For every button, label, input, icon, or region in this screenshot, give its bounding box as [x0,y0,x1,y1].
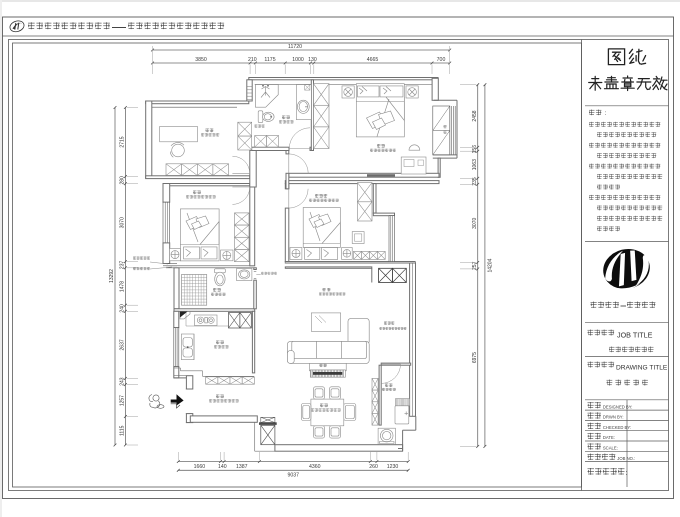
svg-text:2715: 2715 [119,136,125,147]
svg-text:14204: 14204 [488,258,494,272]
svg-text:DESIGNED BY:: DESIGNED BY: [603,404,633,409]
svg-text:280: 280 [119,176,125,185]
svg-text:DRAWING TITLE: DRAWING TITLE [616,365,668,372]
svg-text:243: 243 [119,377,125,386]
svg-text:1660: 1660 [194,464,206,470]
svg-text:1175: 1175 [264,57,275,63]
svg-text:9037: 9037 [288,473,300,479]
svg-text:1230: 1230 [387,464,399,470]
svg-text:1257: 1257 [119,395,125,406]
svg-text:DRWN BY:: DRWN BY: [603,415,624,420]
svg-text:6975: 6975 [472,352,478,363]
svg-text:3850: 3850 [195,57,207,63]
svg-text:SCALE:: SCALE: [603,446,618,451]
svg-text:1387: 1387 [236,464,248,470]
svg-text:1478: 1478 [119,281,125,292]
svg-text:700: 700 [437,57,446,63]
svg-text:1000: 1000 [292,57,304,63]
svg-text:JOB NO.:: JOB NO.: [617,456,635,461]
svg-text:210: 210 [248,57,257,63]
svg-text:4360: 4360 [309,464,321,470]
svg-text:13292: 13292 [109,269,115,283]
svg-text:DATE:: DATE: [603,435,615,440]
svg-text:2637: 2637 [119,339,125,350]
svg-text:2458: 2458 [472,110,478,121]
svg-text:260: 260 [369,464,378,470]
svg-text:3070: 3070 [472,218,478,229]
svg-text:156: 156 [472,145,478,154]
svg-text:CHECKED BY:: CHECKED BY: [603,425,631,430]
svg-text::: : [626,470,628,477]
svg-text:3070: 3070 [119,217,125,228]
svg-text:240: 240 [119,304,125,313]
svg-text:1063: 1063 [472,159,478,170]
svg-text:4665: 4665 [367,57,379,63]
svg-text:JOB TITLE: JOB TITLE [617,331,653,340]
svg-text:11720: 11720 [288,44,302,50]
svg-text:130: 130 [308,57,317,63]
svg-text:140: 140 [218,464,227,470]
svg-text:237: 237 [119,261,125,270]
svg-text:1115: 1115 [119,425,125,436]
